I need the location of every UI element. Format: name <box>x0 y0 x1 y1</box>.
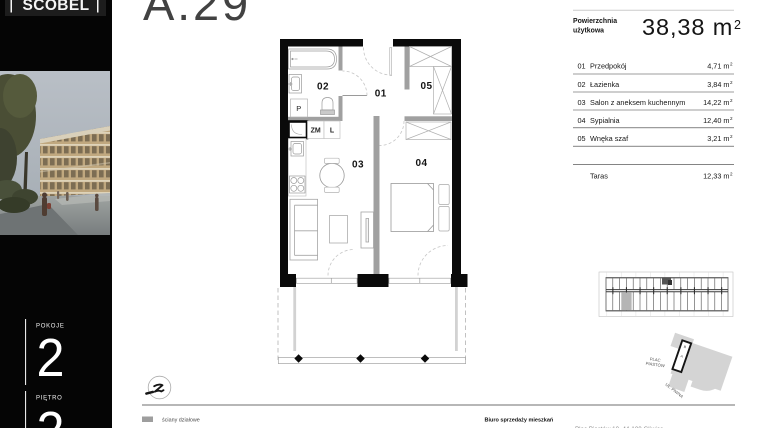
svg-text:A.29: A.29 <box>143 0 251 30</box>
svg-text:Łazienka: Łazienka <box>590 80 620 89</box>
svg-text:PIASTÓW: PIASTÓW <box>645 361 665 369</box>
svg-text:ściany działowe: ściany działowe <box>162 418 200 424</box>
svg-text:05: 05 <box>578 134 586 143</box>
svg-text:Powierzchnia: Powierzchnia <box>573 18 617 25</box>
svg-text:2: 2 <box>37 401 65 428</box>
svg-text:Sypialnia: Sypialnia <box>590 116 621 125</box>
svg-text:03: 03 <box>352 159 364 170</box>
svg-text:05: 05 <box>420 81 432 92</box>
svg-text:04: 04 <box>578 116 586 125</box>
svg-text:2: 2 <box>730 134 733 139</box>
svg-text:Przedpokój: Przedpokój <box>590 62 627 71</box>
svg-text:Salon z aneksem kuchennym: Salon z aneksem kuchennym <box>590 98 685 107</box>
svg-text:SCOBEL: SCOBEL <box>23 0 90 14</box>
svg-text:02: 02 <box>317 81 329 92</box>
svg-text:użytkowa: użytkowa <box>573 28 604 35</box>
svg-text:3,84 m: 3,84 m <box>707 80 729 89</box>
svg-text:04: 04 <box>415 158 427 169</box>
svg-text:12,40 m: 12,40 m <box>703 116 729 125</box>
svg-text:38,38 m: 38,38 m <box>642 14 733 40</box>
svg-text:2: 2 <box>37 328 65 388</box>
svg-text:P: P <box>296 104 301 113</box>
svg-text:2: 2 <box>730 171 733 176</box>
svg-text:2: 2 <box>730 116 733 121</box>
svg-text:01: 01 <box>375 88 387 99</box>
svg-text:2: 2 <box>730 62 733 67</box>
svg-text:2: 2 <box>730 98 733 103</box>
svg-text:2: 2 <box>730 80 733 85</box>
svg-text:L: L <box>330 128 335 135</box>
svg-text:Taras: Taras <box>590 171 608 180</box>
svg-text:2: 2 <box>734 18 741 32</box>
svg-text:3,21 m: 3,21 m <box>707 134 729 143</box>
svg-text:02: 02 <box>578 80 586 89</box>
svg-text:ZM: ZM <box>311 128 321 135</box>
svg-text:Biuro sprzedaży mieszkań: Biuro sprzedaży mieszkań <box>485 417 554 423</box>
svg-text:12,33 m: 12,33 m <box>703 171 729 180</box>
svg-text:14,22 m: 14,22 m <box>703 98 729 107</box>
svg-text:Wnęka szaf: Wnęka szaf <box>590 134 629 143</box>
svg-text:03: 03 <box>578 98 586 107</box>
svg-text:4,71 m: 4,71 m <box>707 62 729 71</box>
svg-text:01: 01 <box>578 62 586 71</box>
